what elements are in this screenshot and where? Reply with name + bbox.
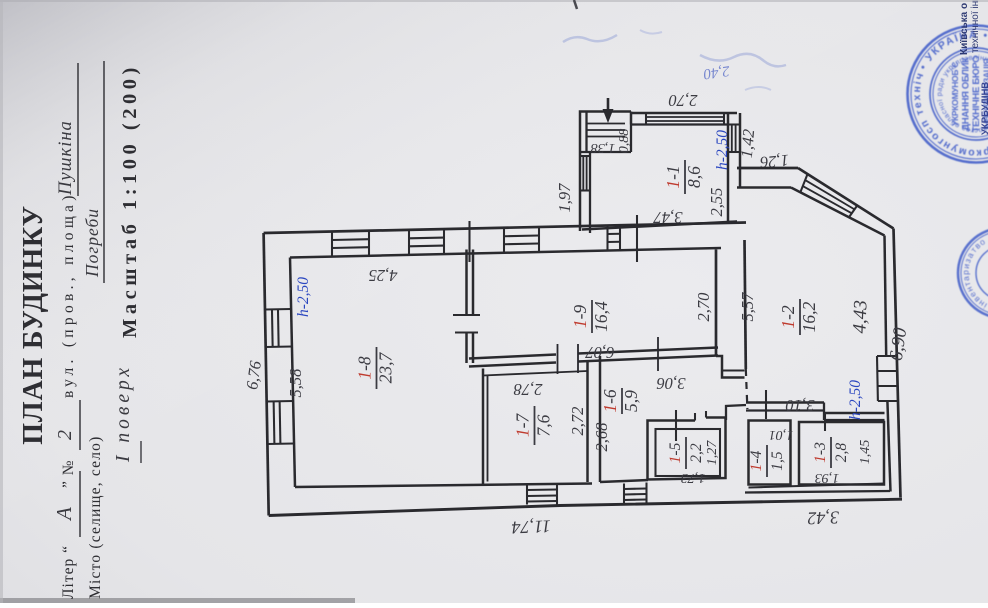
svg-text:3,42: 3,42: [807, 507, 840, 528]
svg-text:1,27: 1,27: [705, 440, 720, 466]
svg-text:7,6: 7,6: [534, 414, 554, 436]
svg-text:2,55: 2,55: [707, 188, 726, 217]
svg-text:1,01: 1,01: [769, 427, 794, 442]
svg-text:Погреби: Погреби: [82, 208, 102, 278]
svg-text:5,58: 5,58: [286, 368, 305, 398]
svg-text:1,93: 1,93: [815, 470, 840, 485]
svg-text:1,5: 1,5: [769, 451, 786, 471]
svg-text:2,78: 2,78: [513, 380, 543, 399]
svg-text:вул. (пров., площа): вул. (пров., площа): [60, 191, 77, 398]
svg-text:2,8: 2,8: [833, 443, 850, 463]
svg-text:h-2,50: h-2,50: [714, 130, 731, 170]
svg-text:16,4: 16,4: [591, 301, 611, 332]
svg-text:1,42: 1,42: [737, 128, 758, 158]
svg-text:3,10: 3,10: [785, 396, 816, 415]
svg-text:І поверх: І поверх: [113, 364, 134, 463]
svg-text:5,57: 5,57: [738, 292, 757, 322]
svg-text:16,2: 16,2: [799, 301, 819, 332]
svg-text:Пушкіна: Пушкіна: [56, 120, 76, 196]
svg-text:5,9: 5,9: [621, 390, 641, 412]
svg-text:4,43: 4,43: [849, 300, 871, 334]
svg-text:1-6: 1-6: [600, 389, 620, 413]
svg-text:11,74: 11,74: [511, 516, 551, 537]
svg-text:h-2,50: h-2,50: [847, 380, 864, 420]
svg-text:1-3: 1-3: [812, 442, 829, 463]
svg-text:3,47: 3,47: [653, 208, 684, 227]
svg-text:1-9: 1-9: [570, 305, 590, 329]
svg-text:1-7: 1-7: [513, 413, 533, 438]
svg-text:УКРБУДІНВ: УКРБУДІНВ: [980, 82, 988, 135]
svg-text:2,70: 2,70: [694, 292, 713, 322]
svg-text:1-4: 1-4: [748, 450, 765, 471]
svg-text:1,38: 1,38: [591, 140, 616, 155]
svg-text:2,70: 2,70: [668, 91, 698, 110]
svg-text:Масштаб 1:100 (200): Масштаб 1:100 (200): [119, 63, 141, 338]
svg-text:23,7: 23,7: [376, 351, 396, 383]
svg-text:2: 2: [54, 430, 76, 440]
svg-text:4,25: 4,25: [369, 266, 398, 285]
svg-text:УКРКОМУНОБ’Є: УКРКОМУНОБ’Є: [950, 62, 960, 126]
svg-text:ДНАННЯ ОБЛИК: ДНАННЯ ОБЛИК: [961, 57, 972, 131]
svg-text:Місто (селище, село): Місто (селище, село): [87, 436, 104, 599]
svg-text:Київська о: Київська о: [959, 3, 970, 55]
svg-text:ПЛАН БУДИНКУ: ПЛАН БУДИНКУ: [18, 205, 49, 445]
svg-text:технічної інв: технічної інв: [970, 0, 981, 53]
svg-text:Літер “: Літер “: [60, 545, 77, 599]
svg-text:1-1: 1-1: [663, 165, 683, 188]
svg-text:3,06: 3,06: [656, 374, 687, 393]
svg-text:2,68: 2,68: [592, 422, 611, 452]
svg-text:1,73: 1,73: [681, 470, 706, 485]
svg-text:1-8: 1-8: [355, 356, 375, 380]
svg-text:2,2: 2,2: [688, 443, 705, 463]
svg-text:А: А: [52, 507, 76, 522]
svg-text:8,6: 8,6: [684, 166, 704, 188]
svg-text:2,72: 2,72: [568, 407, 587, 436]
svg-text:0,88: 0,88: [617, 129, 632, 154]
svg-text:h-2,50: h-2,50: [295, 277, 312, 317]
svg-text:1,45: 1,45: [858, 440, 873, 465]
svg-text:1-2: 1-2: [778, 305, 798, 329]
svg-text:1,97: 1,97: [555, 183, 574, 213]
svg-text:” №: ” №: [60, 459, 77, 488]
svg-text:1-5: 1-5: [667, 442, 684, 463]
